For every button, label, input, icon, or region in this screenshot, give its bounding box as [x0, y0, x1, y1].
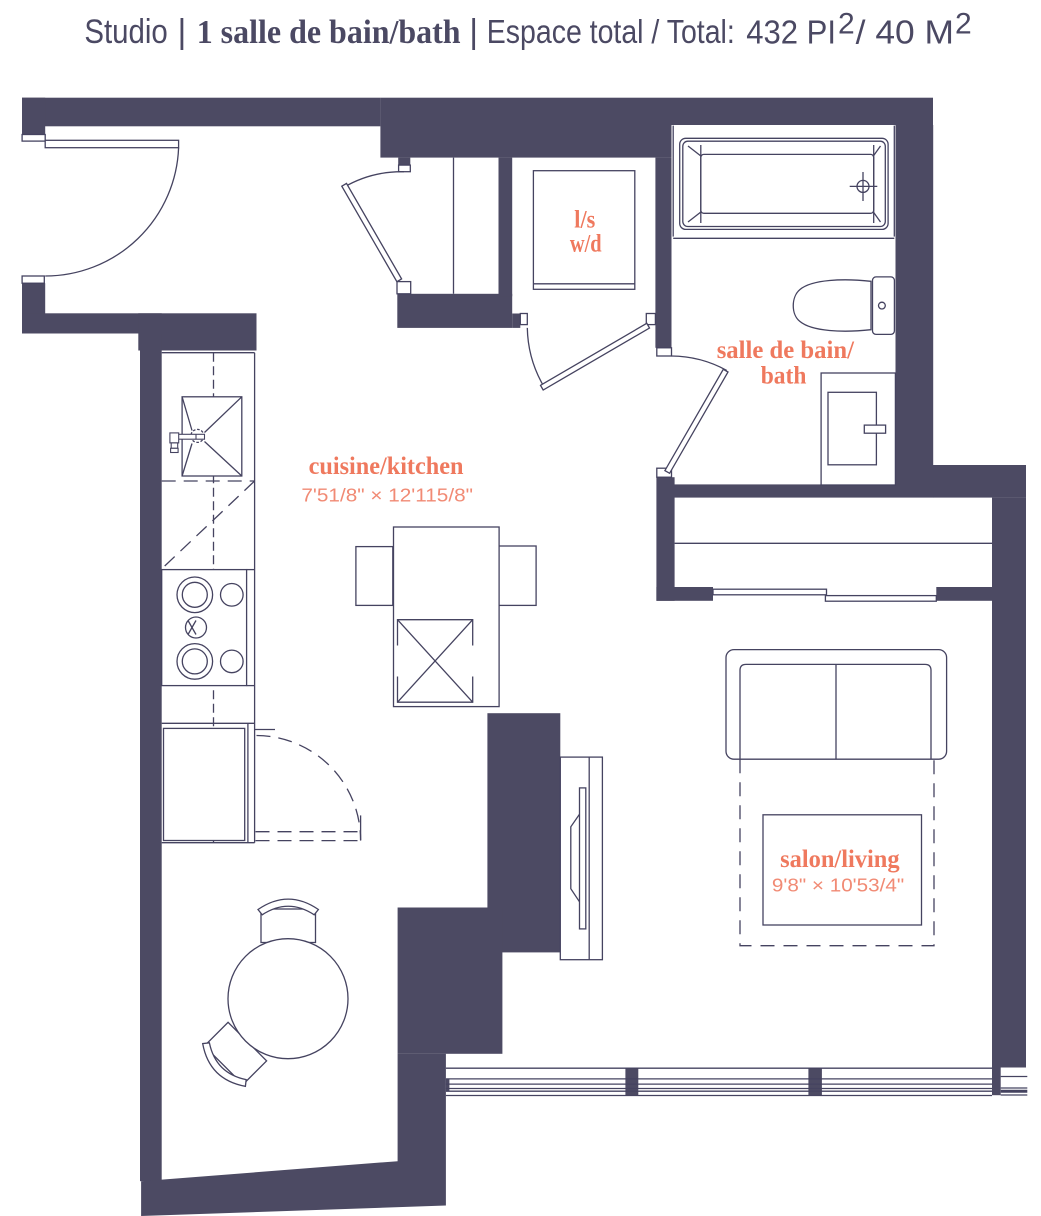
svg-text:salle de bain/: salle de bain/ — [717, 337, 855, 364]
svg-text:|: | — [469, 13, 478, 51]
svg-text:2: 2 — [955, 8, 972, 41]
svg-text:9'8" × 10'53/4": 9'8" × 10'53/4" — [772, 875, 904, 895]
svg-text:2: 2 — [838, 8, 855, 41]
svg-text:Espace total / Total:: Espace total / Total: — [487, 13, 735, 50]
svg-text:Studio: Studio — [84, 13, 167, 51]
svg-text:/ 40 M: / 40 M — [856, 14, 954, 51]
svg-text:cuisine/kitchen: cuisine/kitchen — [309, 453, 464, 480]
svg-text:salon/living: salon/living — [780, 846, 900, 873]
svg-text:7'51/8" × 12'115/8": 7'51/8" × 12'115/8" — [301, 486, 473, 506]
svg-text:l/s: l/s — [574, 207, 595, 234]
svg-text:w/d: w/d — [570, 231, 602, 258]
svg-text:bath: bath — [761, 363, 807, 390]
svg-text:|: | — [178, 13, 187, 51]
svg-text:432 PI: 432 PI — [746, 14, 836, 51]
svg-text:1 salle de bain/bath: 1 salle de bain/bath — [197, 14, 461, 51]
